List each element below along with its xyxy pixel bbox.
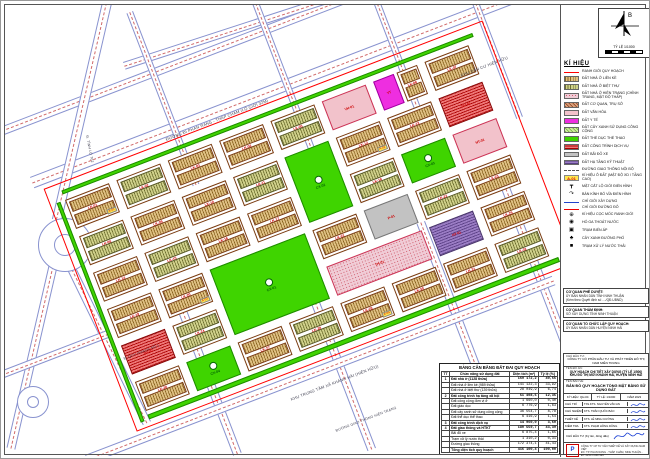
- role-label: KIỂM TRA: [564, 424, 583, 428]
- north-arrow-icon: B: [601, 9, 647, 39]
- legend-label: CHỈ GIỚI ĐƯỜNG ĐỎ: [582, 206, 619, 210]
- legend-label: KÍ HIỆU Ô ĐẤT (MẬT ĐỘ XD / TẦNG CAO): [582, 174, 649, 182]
- svg-text:B: B: [628, 13, 632, 19]
- legend-item: ĐƯỜNG GIAO THÔNG NỘI BỘ: [564, 168, 649, 172]
- project-section: TÊN ĐỒ ÁN: QUY HOẠCH CHI TIẾT XÂY DỰNG (…: [564, 367, 648, 380]
- legend-swatch: [564, 209, 579, 210]
- legend-item: ĐẤT CÂY XANH SỬ DỤNG CÔNG CỘNG: [564, 126, 649, 134]
- legend-label: TRẠM XỬ LÝ NƯỚC THẢI: [582, 245, 626, 249]
- legend-label: BÁN KÍNH BÓ VỈA ĐIỂN HÌNH: [582, 193, 631, 197]
- block-label: VH-01: [344, 104, 355, 111]
- block-label: YT: [386, 90, 392, 95]
- role-row: KIỂM TRAKTS. PHẠM HỒNG DŨNG: [564, 423, 648, 430]
- legend-swatch: [564, 160, 579, 166]
- role-label: THIẾT KẾ: [564, 417, 583, 421]
- legend-item: ▣TRẠM BIẾN ÁP: [564, 228, 649, 234]
- legend-swatch: [564, 76, 579, 82]
- stamp-label: CHỦ ĐẦU TƯ (Ký tên, đóng dấu): [566, 434, 612, 438]
- legend-label: ĐẤT CƠ QUAN, TRỤ SỞ: [582, 103, 623, 107]
- balance-table-grid: TTChức năng sử dụng đấtDiện tích (m²)Tỷ …: [441, 371, 558, 453]
- map-road: [5, 330, 110, 380]
- legend-swatch: [564, 152, 579, 158]
- roundabout: [27, 396, 39, 408]
- legend-label: KÍ HIỆU CỌC MỐC RANH GIỚI: [582, 213, 633, 217]
- legend-item: ↷BÁN KÍNH BÓ VỈA ĐIỂN HÌNH: [564, 192, 649, 198]
- table-cell: [442, 447, 450, 452]
- legend-swatch: [564, 84, 579, 90]
- meta-cell: KÝ HIỆU: QH-04: [564, 394, 592, 400]
- legend-swatch: [564, 136, 579, 142]
- legend-label: CÂY XANH ĐƯỜNG PHỐ: [582, 237, 624, 241]
- table-cell: 416 100,4: [510, 447, 538, 452]
- table-cell: 100,00: [538, 447, 557, 452]
- legend-label: ĐẤT NHÀ Ở LIỀN KỀ: [582, 77, 617, 81]
- legend-item: A-01KÍ HIỆU Ô ĐẤT (MẬT ĐỘ XD / TẦNG CAO): [564, 174, 649, 182]
- block-label: TH-01: [374, 259, 385, 266]
- legend-swatch: [564, 93, 579, 99]
- scale-text: TỶ LỆ 1/1000: [599, 45, 649, 49]
- role-label: CHỦ NHIỆM: [564, 409, 583, 413]
- role-name: KTS. TRẦN QUỐC BẢO: [583, 409, 628, 413]
- legend-item: ĐẤT NHÀ Ở HIỆN TRẠNG (CHỈNH TRANG, MẬT Đ…: [564, 92, 649, 100]
- legend-label: CHỈ GIỚI XÂY DỰNG: [582, 200, 617, 204]
- signature-icon: [612, 430, 646, 442]
- legend-swatch: [564, 102, 579, 108]
- table-cell: Tổng diện tích quy hoạch: [450, 447, 510, 452]
- signature-rows: CHỦ TRÌThS.KTS. NGUYỄN VĂN ANCHỦ NHIỆMKT…: [564, 401, 648, 431]
- title-block: CHỦ ĐẦU TƯ: CÔNG TY CỔ PHẦN ĐẦU TƯ VÀ PH…: [563, 353, 649, 455]
- company-info: CÔNG TY CP TƯ VẤN THIẾT KẾ VÀ XÂY DỰNG N…: [581, 445, 646, 457]
- table-row: Tổng diện tích quy hoạch416 100,4100,00: [442, 447, 558, 452]
- legend-item: CHỈ GIỚI XÂY DỰNG: [564, 200, 649, 204]
- legend-swatch: ▣: [564, 228, 579, 234]
- block-label: DV-01: [461, 101, 472, 108]
- legend-item: ĐẤT VĂN HÓA: [564, 110, 649, 116]
- company-logo: P: [566, 444, 579, 457]
- legend-label: ĐẤT THỂ DỤC THỂ THAO: [582, 137, 625, 141]
- block-label: P-01: [387, 214, 395, 220]
- legend-item: ĐẤT HẠ TẦNG KỸ THUẬT: [564, 160, 649, 166]
- stamp-section: CHỦ ĐẦU TƯ (Ký tên, đóng dấu): [564, 430, 648, 443]
- legend-swatch: [564, 202, 579, 203]
- note-box: CƠ QUAN THẨM ĐỊNH:SỞ XÂY DỰNG TỈNH NINH …: [563, 306, 649, 318]
- legend-swatch: ♣: [564, 236, 579, 242]
- legend-label: HỐ GA THOÁT NƯỚC: [582, 221, 619, 225]
- legend-label: RANH GIỚI QUY HOẠCH: [582, 70, 624, 74]
- approval-notes: CƠ QUAN PHÊ DUYỆT:ỦY BAN NHÂN DÂN TỈNH N…: [563, 288, 649, 334]
- legend-item: ♣CÂY XANH ĐƯỜNG PHỐ: [564, 236, 649, 242]
- note-box: CƠ QUAN PHÊ DUYỆT:ỦY BAN NHÂN DÂN TỈNH N…: [563, 288, 649, 304]
- role-name: ThS.KTS. NGUYỄN VĂN AN: [583, 402, 628, 406]
- project-line: KHU ĐÔ THỊ MỚI KHÁNH HẢI, HUYỆN NINH HẢI: [566, 374, 646, 378]
- legend-label: ĐẤT CÂY XANH SỬ DỤNG CÔNG CỘNG: [582, 126, 649, 134]
- scale-bar: [605, 50, 643, 54]
- column-header: Tỷ lệ (%): [538, 372, 557, 377]
- drawing-section: TÊN BẢN VẼ: BẢN ĐỒ QUY HOẠCH TỔNG MẶT BẰ…: [564, 380, 648, 394]
- note-line: SỞ XÂY DỰNG TỈNH NINH THUẬN: [566, 312, 646, 316]
- legend-label: MẶT CẮT LỘ GIỚI ĐIỂN HÌNH: [582, 185, 632, 189]
- legend-swatch: [564, 170, 579, 171]
- legend-item: ┳MẶT CẮT LỘ GIỚI ĐIỂN HÌNH: [564, 184, 649, 190]
- land-balance-table: BẢNG CÂN BẰNG ĐẤT ĐAI QUY HOẠCH TTChức n…: [439, 363, 560, 455]
- legend-item: ĐẤT NHÀ Ở LIỀN KỀ: [564, 76, 649, 82]
- role-name: KTS. LÊ MINH CƯỜNG: [583, 417, 628, 421]
- map-road: [7, 241, 63, 450]
- legend-swatch: ◉: [564, 220, 579, 226]
- legend-swatch: A-01: [564, 175, 579, 181]
- note-box: CƠ QUAN TỔ CHỨC LẬP QUY HOẠCH:ỦY BAN NHÂ…: [563, 320, 649, 332]
- role-name: KTS. PHẠM HỒNG DŨNG: [583, 424, 628, 428]
- legend-label: ĐẤT BÃI ĐỖ XE: [582, 153, 608, 157]
- drawing-title: BẢN ĐỒ QUY HOẠCH TỔNG MẶT BẰNG SỬ DỤNG Đ…: [566, 384, 646, 393]
- legend-label: TRẠM BIẾN ÁP: [582, 229, 607, 233]
- legend-item: ■TRẠM XỬ LÝ NƯỚC THẢI: [564, 244, 649, 250]
- legend-label: ĐẤT VĂN HÓA: [582, 111, 606, 115]
- signature-icon: [630, 424, 646, 430]
- legend-item: RANH GIỚI QUY HOẠCH: [564, 70, 649, 74]
- north-arrow-box: B TỶ LỆ 1/1000: [598, 8, 650, 58]
- note-line: (Kèm theo Quyết định số ..../QĐ-UBND): [566, 298, 646, 302]
- legend-label: ĐƯỜNG GIAO THÔNG NỘI BỘ: [582, 168, 634, 172]
- legend-label: ĐẤT NHÀ Ở BIỆT THỰ: [582, 85, 620, 89]
- legend-swatch: ┳: [564, 184, 579, 190]
- legend-label: ĐẤT CÔNG TRÌNH DỊCH VỤ: [582, 145, 629, 149]
- legend-item: ĐẤT NHÀ Ở BIỆT THỰ: [564, 84, 649, 90]
- legend-item: ĐẤT THỂ DỤC THỂ THAO: [564, 136, 649, 142]
- legend-swatch: ■: [564, 244, 579, 250]
- note-line: ỦY BAN NHÂN DÂN HUYỆN NINH HẢI: [566, 326, 646, 330]
- table-cell: Đất cây xanh sử dụng công cộng: [450, 409, 510, 414]
- legend-title: KÍ HIỆU: [564, 61, 649, 67]
- legend-label: ĐẤT NHÀ Ở HIỆN TRẠNG (CHỈNH TRANG, MẬT Đ…: [582, 92, 649, 100]
- legend-swatch: ↷: [564, 192, 579, 198]
- role-label: CHỦ TRÌ: [564, 402, 583, 406]
- panel-divider: [560, 4, 561, 457]
- meta-cell: TỶ LỆ: 1/1000: [592, 394, 620, 400]
- company-footer: P CÔNG TY CP TƯ VẤN THIẾT KẾ VÀ XÂY DỰNG…: [564, 443, 648, 458]
- legend-label: ĐẤT Y TẾ: [582, 119, 598, 123]
- legend-item: CHỈ GIỚI ĐƯỜNG ĐỎ: [564, 206, 649, 210]
- investor-section: CHỦ ĐẦU TƯ: CÔNG TY CỔ PHẦN ĐẦU TƯ VÀ PH…: [564, 354, 648, 367]
- legend-item: ◉HỐ GA THOÁT NƯỚC: [564, 220, 649, 226]
- legend-swatch: [564, 110, 579, 116]
- legend-swatch: [564, 118, 579, 124]
- legend-item: ĐẤT BÃI ĐỖ XE: [564, 152, 649, 158]
- plan-sheet: LK-01A-01LK-02LK-03LK-04LK-05VH-01YTLK-0…: [0, 0, 650, 459]
- block-label: NT-01: [475, 137, 485, 144]
- legend-label: ĐẤT HẠ TẦNG KỸ THUẬT: [582, 161, 625, 165]
- legend-item: ĐẤT CƠ QUAN, TRỤ SỞ: [564, 102, 649, 108]
- project-name: QUY HOẠCH CHI TIẾT XÂY DỰNG (TỶ LỆ 1/500…: [566, 371, 646, 379]
- legend-swatch: [564, 72, 579, 73]
- investor-name: CÔNG TY CỔ PHẦN ĐẦU TƯ VÀ PHÁT TRIỂN ĐÔ …: [566, 358, 646, 365]
- legend-item: ĐẤT Y TẾ: [564, 118, 649, 124]
- legend-swatch: [564, 144, 579, 150]
- company-line: ĐC: TP. PHAN RANG - THÁP CHÀM, NINH THUẬ…: [581, 451, 646, 457]
- legend-item: ⊕KÍ HIỆU CỌC MỐC RANH GIỚI: [564, 213, 649, 219]
- legend-swatch: ⊕: [564, 213, 579, 219]
- block-label: HT-01: [451, 230, 461, 237]
- column-header: Diện tích (m²): [510, 372, 538, 377]
- legend: KÍ HIỆU RANH GIỚI QUY HOẠCHĐẤT NHÀ Ở LIỀ…: [564, 61, 649, 252]
- legend-swatch: [564, 127, 579, 133]
- legend-item: ĐẤT CÔNG TRÌNH DỊCH VỤ: [564, 144, 649, 150]
